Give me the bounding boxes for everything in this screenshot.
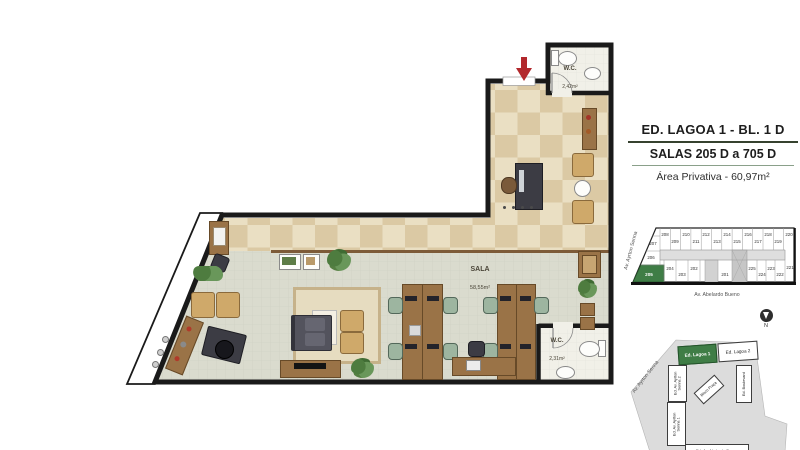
unit-label: 218 (764, 232, 772, 237)
private-area: Área Privativa - 60,97m² (628, 171, 798, 183)
unit-label-highlighted: 205 (645, 272, 653, 277)
unit-label: 216 (744, 232, 752, 237)
office-chair (534, 297, 549, 314)
entry-strip-floor (208, 218, 490, 251)
sitemap-building-senna2: Ed. Av. Ayrton Senna 2 (668, 365, 687, 402)
wall-frame (303, 254, 320, 270)
compass-icon (760, 309, 773, 322)
sitemap-building-senna1: Ed. Av. Ayrton Senna 1 (667, 402, 686, 446)
title-divider (628, 141, 798, 143)
monitor (405, 344, 417, 349)
unit-label: 207 (649, 241, 657, 246)
unit-label: 214 (723, 232, 731, 237)
unit-label: 225 (748, 266, 756, 271)
office-chair (388, 343, 403, 360)
sitemap-building-abelardo-bueno: Ed. Av. Abelardo Bueno (685, 444, 749, 450)
unit-label: 210 (682, 232, 690, 237)
wc-bottom-label: W.C. 2,31m² (540, 338, 574, 366)
monitor (427, 296, 439, 301)
team-desk (452, 357, 516, 376)
unit-range: SALAS 205 D a 705 D (628, 147, 798, 165)
keyplan-corridor (660, 250, 785, 260)
printer (409, 325, 421, 336)
office-chair (483, 297, 498, 314)
monitor (500, 344, 511, 349)
floor-plan-sheet: SALA 58,55m² W.C. 2,42m² W.C. 2,31m² ED.… (0, 0, 800, 450)
office-chair (388, 297, 403, 314)
keyplan-street-bottom: Av. Abelardo Bueno (694, 292, 739, 298)
unit-label: 220 (785, 232, 793, 237)
wc-bottom-toilet (579, 341, 600, 357)
title-divider-thin (632, 165, 794, 166)
monitor (427, 344, 439, 349)
unit-label: 204 (666, 266, 674, 271)
hall-sideboard (582, 108, 597, 150)
monitor (405, 296, 417, 301)
hall-floor-spots (503, 206, 533, 209)
sofa (291, 315, 332, 351)
balcony-pot (157, 349, 164, 356)
unit-label: 223 (767, 266, 775, 271)
unit-label: 203 (678, 272, 686, 277)
unit-label: 212 (702, 232, 710, 237)
hall-armchair (572, 200, 594, 224)
building-title: ED. LAGOA 1 - BL. 1 D (628, 122, 798, 141)
unit-label: 206 (647, 255, 655, 260)
wall-frame (279, 254, 301, 270)
planter-box (193, 266, 223, 281)
hall-round-table (574, 180, 591, 197)
ottoman (340, 310, 364, 332)
balcony-pot (152, 361, 159, 368)
hall-armchair (572, 153, 594, 177)
sitemap-building-lagoa2: Ed. Lagoa 2 (717, 341, 758, 363)
unit-label: 215 (733, 239, 741, 244)
unit-label: 221 (786, 265, 794, 270)
title-block: ED. LAGOA 1 - BL. 1 D SALAS 205 D a 705 … (628, 122, 798, 183)
lounge-chair (191, 292, 215, 318)
unit-label: 208 (661, 232, 669, 237)
monitor (500, 296, 511, 301)
unit-label: 222 (776, 272, 784, 277)
balcony-pot (162, 336, 169, 343)
storage-cabinet (578, 251, 601, 278)
wc-top-toilet (558, 51, 577, 66)
monitor (520, 296, 531, 301)
unit-label: 219 (774, 239, 782, 244)
executive-chair (215, 340, 234, 359)
monitor (520, 344, 531, 349)
floor-key-plan: 208 209 210 211 212 213 214 215 216 217 … (605, 220, 800, 304)
unit-label: 213 (713, 239, 721, 244)
office-chair (443, 297, 458, 314)
unit-label: 202 (690, 266, 698, 271)
unit-label: 209 (671, 239, 679, 244)
unit-label: 224 (758, 272, 766, 277)
unit-label: 211 (693, 239, 701, 244)
keyplan-core (705, 260, 718, 282)
entrance-arrow-icon (516, 57, 532, 83)
lounge-chair (216, 292, 240, 318)
laptop (466, 360, 481, 371)
site-map: Ed. Lagoa 1 Ed. Lagoa 2 Ed. Av. Ayrton S… (628, 332, 800, 450)
unit-label: 201 (721, 272, 729, 277)
compass-north-label: N (753, 323, 779, 329)
wc-bottom-sink (556, 366, 575, 379)
keyplan-street-left: Av. Ayrton Senna (623, 231, 639, 271)
tv-sideboard (280, 360, 341, 378)
floor-plant (351, 358, 374, 378)
task-chair (468, 341, 485, 357)
wall-plant (327, 249, 351, 271)
stool (580, 303, 595, 316)
reception-chair (501, 177, 517, 194)
wc-top-label: W.C. 2,42m² (551, 66, 589, 94)
office-cabinet (209, 221, 229, 255)
floor-plant (578, 279, 597, 298)
sala-label: SALA 58,55m² (452, 266, 508, 295)
sitemap-building-lagoa1: Ed. Lagoa 1 (677, 344, 717, 366)
sitemap-building-boulevard: Ed. Boulevard (736, 365, 752, 403)
reception-desk (515, 163, 543, 210)
ottoman (340, 332, 364, 354)
stool (580, 317, 595, 330)
unit-label: 217 (754, 239, 762, 244)
north-compass: N (753, 309, 779, 329)
